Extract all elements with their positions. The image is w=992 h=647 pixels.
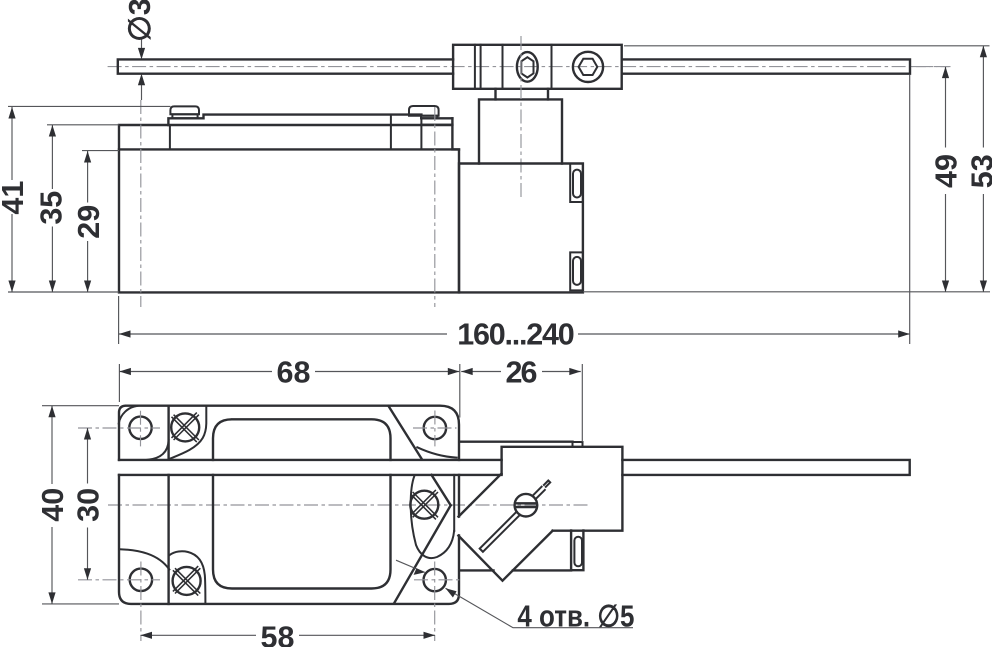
- svg-text:40: 40: [36, 488, 70, 522]
- svg-text:35: 35: [35, 191, 69, 225]
- svg-text:58: 58: [261, 621, 295, 647]
- svg-text:4 отв. ∅5: 4 отв. ∅5: [517, 599, 634, 633]
- svg-text:41: 41: [0, 181, 30, 215]
- svg-text:53: 53: [966, 154, 992, 188]
- svg-text:∅3: ∅3: [123, 0, 157, 42]
- svg-text:160...240: 160...240: [457, 318, 575, 352]
- svg-text:30: 30: [72, 488, 106, 522]
- svg-text:29: 29: [72, 205, 106, 239]
- svg-text:68: 68: [277, 356, 311, 390]
- svg-text:49: 49: [929, 154, 963, 188]
- svg-text:26: 26: [506, 356, 538, 390]
